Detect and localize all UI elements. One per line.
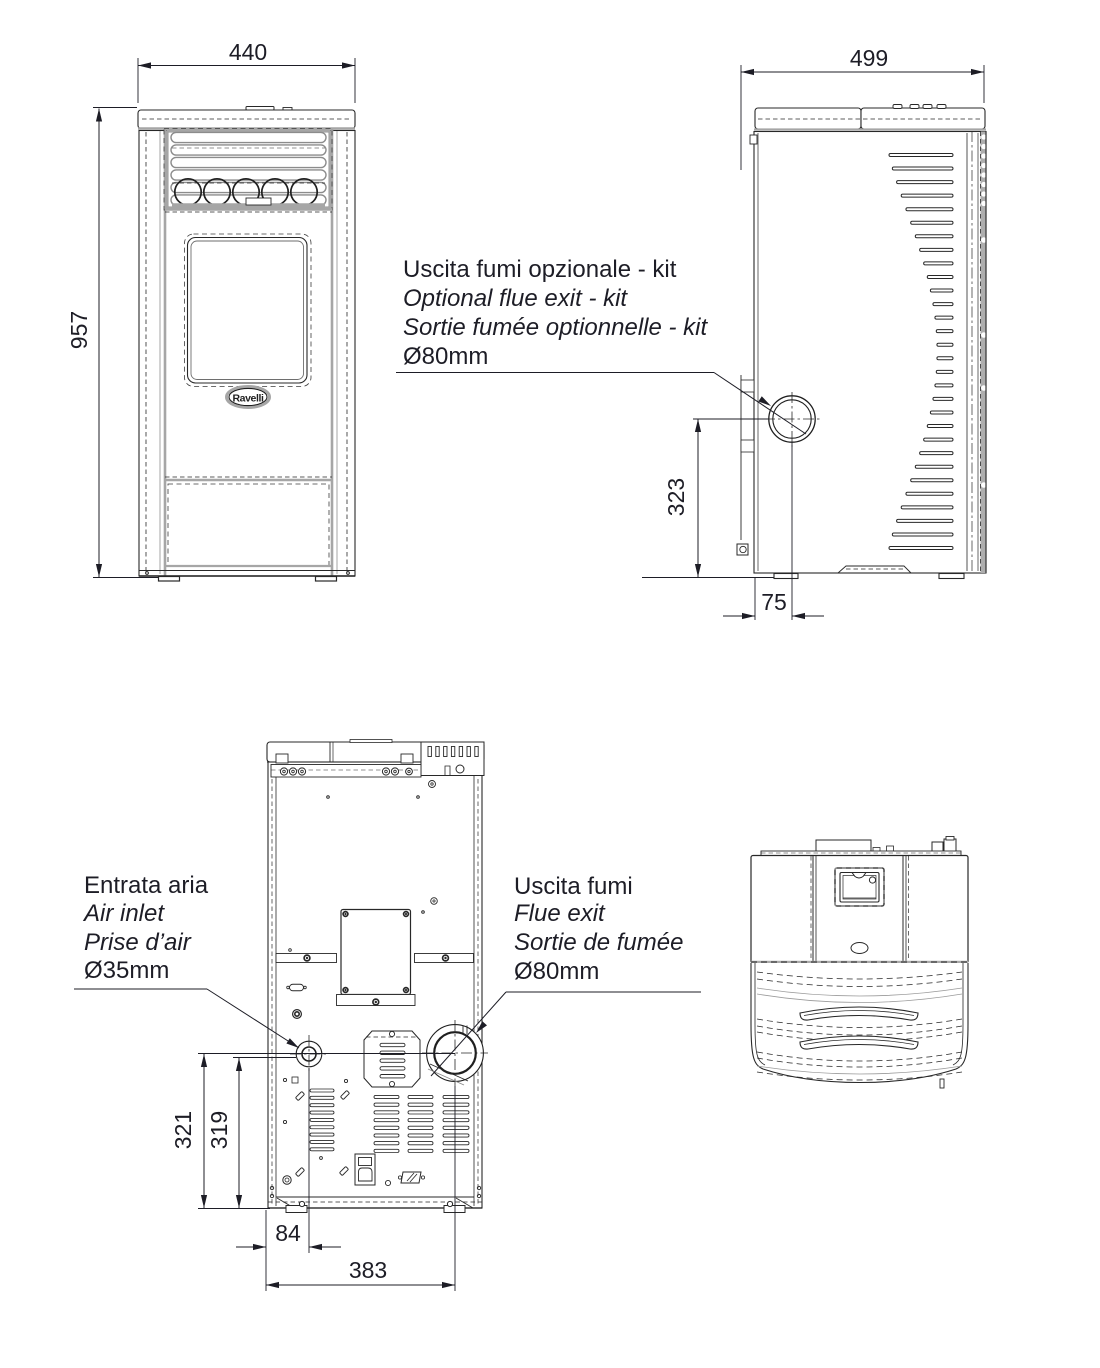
svg-text:Optional flue exit - kit: Optional flue exit - kit	[403, 285, 628, 312]
svg-text:319: 319	[206, 1111, 232, 1149]
svg-text:957: 957	[66, 311, 92, 349]
svg-text:Prise d’air: Prise d’air	[84, 929, 192, 956]
svg-text:Sortie fumée optionnelle - kit: Sortie fumée optionnelle - kit	[403, 314, 708, 341]
svg-text:Entrata aria: Entrata aria	[84, 872, 209, 899]
svg-text:Uscita fumi: Uscita fumi	[514, 873, 633, 900]
svg-text:440: 440	[229, 39, 267, 65]
svg-text:Ø80mm: Ø80mm	[403, 343, 488, 370]
svg-text:323: 323	[663, 478, 689, 516]
svg-text:383: 383	[349, 1257, 387, 1283]
svg-text:321: 321	[170, 1111, 196, 1149]
svg-text:Ø35mm: Ø35mm	[84, 957, 169, 984]
svg-text:499: 499	[850, 45, 888, 71]
svg-text:Ravelli: Ravelli	[232, 393, 264, 405]
svg-text:Flue exit: Flue exit	[514, 900, 606, 927]
svg-text:Uscita fumi opzionale - kit: Uscita fumi opzionale - kit	[403, 256, 677, 283]
svg-text:Ø80mm: Ø80mm	[514, 958, 599, 985]
svg-text:75: 75	[761, 589, 787, 615]
svg-text:84: 84	[275, 1220, 301, 1246]
svg-text:Sortie de fumée: Sortie de fumée	[514, 929, 683, 956]
svg-text:Air inlet: Air inlet	[82, 900, 165, 927]
